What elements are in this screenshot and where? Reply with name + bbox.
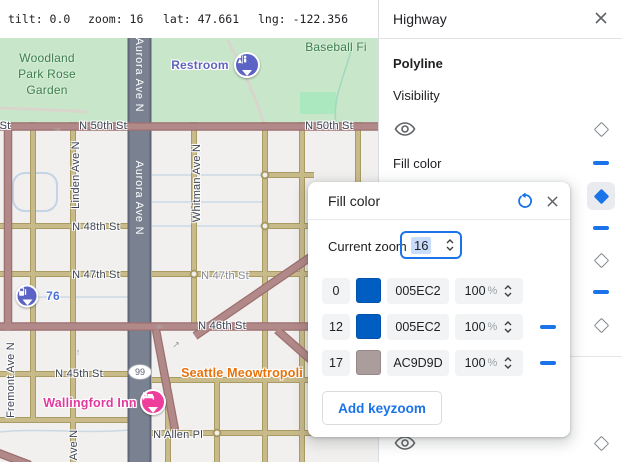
fill-color-dialog: Fill color Current zoom 16 0 bbox=[308, 182, 570, 437]
street-label-n47th-left: N 47th St bbox=[72, 269, 120, 281]
keyzoom-level-chip[interactable]: 17 bbox=[322, 350, 350, 376]
zoom-readout: zoom: 16 bbox=[88, 12, 143, 26]
route-99-shield: 99 bbox=[128, 364, 152, 380]
street-label-ave-n-partial: Ave N bbox=[68, 430, 80, 461]
gas-station-icon bbox=[16, 285, 39, 308]
lng-readout: lng: -122.356 bbox=[258, 12, 348, 26]
panel-title: Highway bbox=[393, 11, 447, 27]
current-zoom-value: 16 bbox=[411, 237, 431, 254]
keyzoom-row-dash[interactable] bbox=[540, 325, 556, 329]
keyzoom-diamond-icon[interactable] bbox=[594, 436, 610, 452]
panel-header: Highway bbox=[379, 0, 622, 39]
color-swatch[interactable] bbox=[356, 350, 381, 375]
opacity-stepper[interactable] bbox=[503, 320, 513, 334]
reset-button[interactable] bbox=[515, 191, 535, 211]
opacity-value: 100 bbox=[465, 284, 486, 298]
add-keyzoom-button[interactable]: Add keyzoom bbox=[322, 391, 442, 425]
opacity-stepper[interactable] bbox=[503, 284, 513, 298]
keyzoom-diamond-icon[interactable] bbox=[594, 318, 610, 334]
oneway-arrow-up: ↑ bbox=[76, 347, 81, 357]
chevron-down-icon bbox=[505, 293, 511, 296]
chevron-up-icon bbox=[505, 286, 511, 289]
property-label-fill-color: Fill color bbox=[393, 156, 441, 171]
street-label-linden: Linden Ave N bbox=[70, 141, 82, 209]
panel-close-button[interactable] bbox=[591, 8, 611, 28]
opacity-value: 100 bbox=[465, 356, 486, 370]
color-swatch[interactable] bbox=[356, 314, 381, 339]
value-dash[interactable] bbox=[593, 226, 609, 230]
chevron-up-icon bbox=[447, 240, 453, 243]
percent-sign: % bbox=[488, 357, 498, 369]
visibility-eye-toggle[interactable] bbox=[393, 119, 417, 139]
oneway-arrow-left: ← bbox=[156, 320, 165, 330]
keyzoom-row-dash[interactable] bbox=[540, 361, 556, 365]
dialog-close-button[interactable] bbox=[542, 191, 562, 211]
value-dash[interactable] bbox=[593, 290, 609, 294]
street-label-n50th-center: N 50th St bbox=[79, 120, 127, 132]
park-label-line2: Park Rose bbox=[18, 67, 76, 81]
opacity-stepper[interactable] bbox=[503, 356, 513, 370]
chevron-up-icon bbox=[505, 358, 511, 361]
restroom-icon bbox=[234, 52, 260, 78]
oneway-arrow-right: → bbox=[53, 123, 62, 133]
chevron-down-icon bbox=[505, 329, 511, 332]
opacity-value: 100 bbox=[465, 320, 486, 334]
oneway-arrow-ramp: ↗ bbox=[172, 340, 180, 351]
hex-value-chip[interactable]: 005EC2 bbox=[387, 314, 449, 340]
color-swatch[interactable] bbox=[356, 278, 381, 303]
keyzoom-level-chip[interactable]: 0 bbox=[322, 278, 350, 304]
baseball-field-label: Baseball Fi bbox=[305, 40, 367, 54]
gas-station-label: 76 bbox=[46, 289, 60, 303]
street-label-whitman: Whitman Ave N bbox=[191, 144, 203, 222]
percent-sign: % bbox=[488, 321, 498, 333]
street-label-st-partial: St bbox=[0, 120, 10, 132]
street-label-n47th-right: N 47th St bbox=[201, 270, 249, 282]
eye-icon bbox=[394, 121, 416, 137]
keyzoom-level-chip[interactable]: 12 bbox=[322, 314, 350, 340]
chevron-down-icon bbox=[447, 247, 453, 250]
eye-icon bbox=[394, 435, 416, 451]
restroom-label: Restroom bbox=[171, 58, 229, 72]
opacity-chip[interactable]: 100% bbox=[455, 278, 523, 304]
tilt-readout: tilt: 0.0 bbox=[8, 12, 70, 26]
style-editor-app: tilt: 0.0 zoom: 16 lat: 47.661 lng: -122… bbox=[0, 0, 622, 462]
street-label-fremont: Fremont Ave N bbox=[5, 342, 17, 418]
lat-readout: lat: 47.661 bbox=[163, 12, 239, 26]
street-label-aurora-mid: Aurora Ave N bbox=[133, 161, 145, 236]
map-info-bar: tilt: 0.0 zoom: 16 lat: 47.661 lng: -122… bbox=[0, 0, 378, 39]
street-label-n46th: N 46th St bbox=[198, 320, 246, 332]
current-zoom-label: Current zoom bbox=[328, 239, 407, 254]
park-label-line3: Garden bbox=[26, 83, 67, 97]
poi-label-seattle-meowtropolitan: Seattle Meowtropoli bbox=[181, 366, 303, 380]
current-zoom-input[interactable]: 16 bbox=[400, 231, 462, 259]
percent-sign: % bbox=[488, 285, 498, 297]
street-label-aurora-top: Aurora Ave N bbox=[133, 38, 145, 112]
selected-keyzoom-control[interactable] bbox=[587, 182, 615, 210]
chevron-down-icon bbox=[505, 365, 511, 368]
lodging-icon bbox=[140, 389, 166, 415]
hex-value-chip[interactable]: 005EC2 bbox=[387, 278, 449, 304]
visibility-keyzoom-diamond-icon[interactable] bbox=[594, 122, 610, 138]
chevron-up-icon bbox=[505, 322, 511, 325]
zoom-stepper[interactable] bbox=[445, 238, 455, 252]
reset-icon bbox=[517, 193, 533, 209]
hotel-label-wallingford-inn: Wallingford Inn bbox=[43, 396, 137, 410]
opacity-chip[interactable]: 100% bbox=[455, 350, 523, 376]
opacity-chip[interactable]: 100% bbox=[455, 314, 523, 340]
street-label-n48th: N 48th St bbox=[72, 221, 120, 233]
fill-color-value-dash[interactable] bbox=[593, 161, 609, 165]
selected-diamond-icon bbox=[593, 188, 609, 204]
close-icon bbox=[596, 13, 606, 23]
dialog-header: Fill color bbox=[308, 182, 570, 220]
hex-value-chip[interactable]: AC9D9D bbox=[387, 350, 449, 376]
street-label-n45th: N 45th St bbox=[55, 368, 103, 380]
section-label-polyline: Polyline bbox=[393, 56, 443, 71]
keyzoom-diamond-icon[interactable] bbox=[594, 253, 610, 269]
dialog-title: Fill color bbox=[328, 193, 380, 209]
park-label-line1: Woodland bbox=[19, 51, 74, 65]
street-label-n-allen-pl: N Allen Pl bbox=[153, 429, 203, 441]
property-label-visibility: Visibility bbox=[393, 88, 440, 103]
street-label-n50th-right: N 50th St bbox=[305, 120, 353, 132]
close-icon bbox=[547, 196, 556, 205]
